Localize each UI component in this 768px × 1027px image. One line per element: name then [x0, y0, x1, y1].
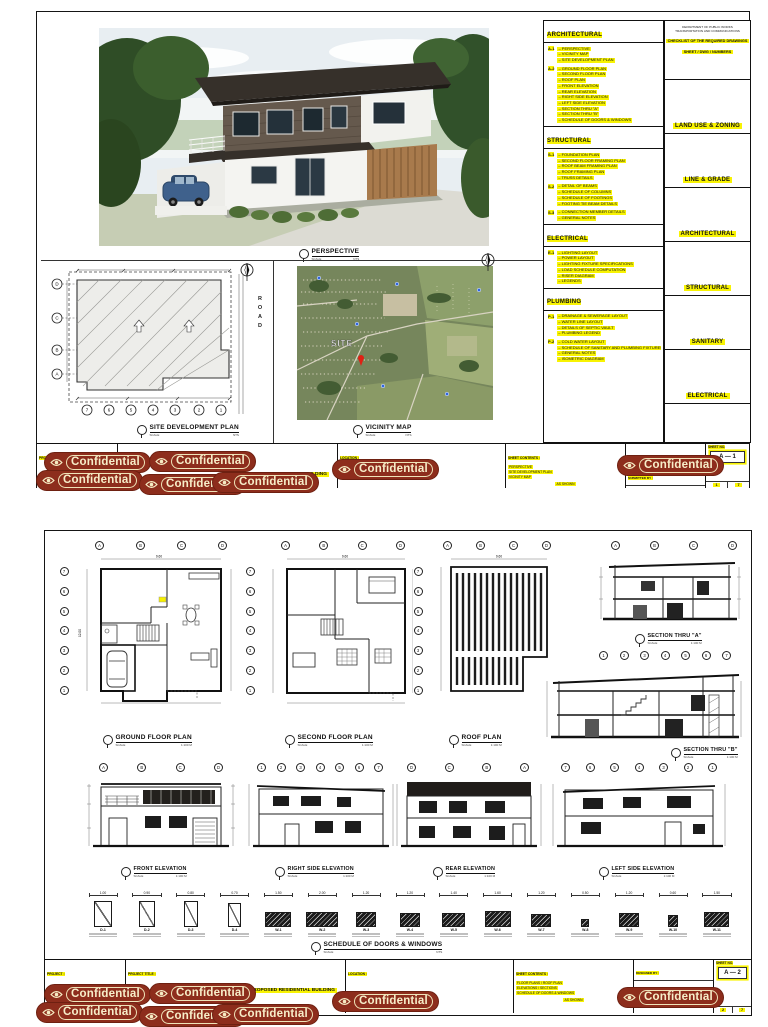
- left-elevation-drawing: [547, 774, 731, 854]
- project-title: PROPOSED RESIDENTIAL BUILDING: [248, 988, 337, 993]
- drawing-title: ROOF PLAN: [462, 734, 502, 743]
- scale-word: SCALE: [366, 433, 376, 437]
- drawing-title: PERSPECTIVE: [312, 248, 360, 257]
- detail-marker-icon: [671, 748, 681, 758]
- scale-note: AS SHOWN: [555, 482, 577, 486]
- grid-bubble: 3: [414, 646, 423, 655]
- schedule-item: 1.50 W-1: [260, 891, 296, 937]
- sheet-code: P-1: [548, 314, 554, 319]
- grid-bubble: 5: [60, 607, 69, 616]
- grid-bubble: 3: [296, 763, 305, 772]
- front-elevation-panel: ABCD FRONT ELEVATION SCALE1:100 M: [85, 763, 237, 881]
- cell-label: PROJECT TITLE :: [128, 972, 156, 976]
- note-item: SCHEDULE OF FOOTINGS: [557, 196, 613, 201]
- grid-bubble: 7: [246, 567, 255, 576]
- notes-structural: STRUCTURAL S-1 FOUNDATION PLANSECOND FLO…: [544, 126, 663, 221]
- checklist-row: LINE & GRADE: [665, 134, 750, 188]
- grid-bubble: 7: [414, 567, 423, 576]
- grid-bubble: A: [95, 541, 104, 550]
- eye-icon: [42, 1008, 55, 1017]
- section-title: ELECTRICAL: [547, 236, 588, 242]
- drawing-title: REAR ELEVATION: [446, 866, 496, 874]
- drawing-title: GROUND FLOOR PLAN: [116, 734, 192, 743]
- confidential-stamp: Confidential: [212, 1004, 319, 1025]
- page-total: 7: [735, 483, 741, 487]
- detail-marker-icon: [433, 867, 443, 877]
- grid-bubble: 1: [708, 763, 717, 772]
- scale-value: 1:100 M: [484, 874, 495, 878]
- detail-marker-icon: [353, 425, 363, 435]
- door-window-symbol: [619, 913, 639, 927]
- sheet-content-line: SITE DEVELOPMENT PLAN: [508, 470, 553, 474]
- grid-bubble: C: [176, 763, 185, 772]
- grid-bubble: 7: [561, 763, 570, 772]
- notes-electrical: ELECTRICAL E-1 LIGHTING LAYOUTPOWER LAYO…: [544, 224, 663, 284]
- dim-text: 12.00: [78, 629, 82, 637]
- grid-bubble: 7: [374, 763, 383, 772]
- section-b-panel: 1234567 SECTION THRU "B" SCALE1:100 M: [543, 651, 747, 761]
- page-number: 1: [713, 483, 719, 487]
- note-item: PLUMBING LEGEND: [557, 331, 601, 336]
- grid-bubble: B: [650, 541, 659, 550]
- cell-label: SHEET CONTENTS :: [508, 456, 540, 460]
- item-caption: [436, 932, 472, 937]
- dim-label: 0.90: [132, 891, 161, 896]
- item-caption: [567, 932, 603, 937]
- schedule-item: 0.60 W-10: [655, 891, 691, 937]
- sheet-1: PERSPECTIVE SCALENTS D C B A 7 6: [36, 11, 750, 488]
- rear-elevation-drawing: [393, 774, 545, 854]
- grid-bubble: A: [520, 763, 529, 772]
- confidential-stamp: Confidential: [36, 1002, 143, 1023]
- detail-marker-icon: [137, 425, 147, 435]
- note-item: LOAD SCHEDULE COMPUTATION: [557, 268, 626, 273]
- checklist-label: LAND USE & ZONING: [673, 123, 742, 129]
- eye-icon: [218, 478, 231, 487]
- site-plan-label: SITE DEVELOPMENT PLAN SCALENTS: [137, 424, 239, 437]
- grid-bubble: 1: [599, 651, 608, 660]
- note-item: FRONT ELEVATION: [557, 84, 599, 89]
- grid-bubble: 6: [414, 587, 423, 596]
- roof-plan-label: ROOF PLAN SCALE1:100 M: [449, 734, 502, 747]
- door-window-symbol: [704, 912, 729, 927]
- dim-label: 2.00: [308, 891, 337, 896]
- grid-bubble: A: [99, 763, 108, 772]
- item-caption: [217, 932, 253, 937]
- sheet-content-line: FLOOR PLANS / ROOF PLAN: [516, 981, 563, 985]
- schedule-item: 1.00 D-1: [85, 891, 121, 937]
- item-caption: [85, 932, 121, 937]
- grid-bubble: 2: [60, 666, 69, 675]
- section-title: PLUMBING: [547, 299, 581, 305]
- sheet-code: S-1: [548, 152, 554, 157]
- grid-bubble: 3: [60, 646, 69, 655]
- grid-bubble: 2: [684, 763, 693, 772]
- grid-bubble: 1: [257, 763, 266, 772]
- scale-word: SCALE: [684, 755, 694, 759]
- dim-label: 0.50: [571, 891, 600, 896]
- scale-value: 1:100 M: [491, 743, 502, 747]
- grid-bubble: B: [319, 541, 328, 550]
- confidential-stamp: Confidential: [149, 983, 256, 1004]
- grid-bubble: C: [177, 541, 186, 550]
- checklist-row: LAND USE & ZONING: [665, 80, 750, 134]
- left-elevation-panel: 7654321 LEFT SIDE ELEVATION SCALE1:100 M: [547, 763, 731, 881]
- item-caption: [348, 932, 384, 937]
- grid-bubble: C: [509, 541, 518, 550]
- checklist-row: ELECTRICAL: [665, 350, 750, 404]
- rear-elevation-panel: DCBA REAR ELEVATION SCALE1:100 M: [393, 763, 543, 881]
- door-window-symbol: [306, 912, 338, 927]
- right-elevation-drawing: [245, 774, 397, 854]
- checklist-header: DEPARTMENT OF PUBLIC WORKSTRANSPORTATION…: [665, 21, 750, 80]
- grid-bubble: A: [55, 372, 58, 377]
- second-floor-plan-drawing: 9.60: [257, 553, 413, 708]
- second-floor-plan-panel: ABCD 7654321 9.60 SECOND FLOOR PLAN SCAL…: [245, 541, 413, 757]
- scale-value: 1:100 M: [343, 874, 354, 878]
- signature-label: DESIGNED BY :: [636, 971, 659, 975]
- scale-word: SCALE: [324, 950, 334, 954]
- grid-bubble: C: [358, 541, 367, 550]
- sheet-code: A-1: [548, 46, 554, 51]
- grid-bubble: A: [281, 541, 290, 550]
- grid-bubble: C: [445, 763, 454, 772]
- section-b-label: SECTION THRU "B" SCALE1:100 M: [671, 747, 738, 759]
- door-window-symbol: [228, 903, 241, 927]
- detail-marker-icon: [121, 867, 131, 877]
- confidential-stamp: Confidential: [212, 472, 319, 493]
- ground-floor-plan-panel: ABCD 7654321 9.60 12.00: [59, 541, 241, 757]
- dim-label: 1.20: [352, 891, 381, 896]
- detail-marker-icon: [103, 735, 113, 745]
- notes-architectural: ARCHITECTURAL A-1 PERSPECTIVEVICINITY MA…: [544, 21, 663, 123]
- roof-plan-panel: ABCD 7654321 9.60 ROOF PLAN SCALE1:100 M: [413, 541, 557, 757]
- grid-bubble: 5: [335, 763, 344, 772]
- vicinity-map-label: VICINITY MAP SCALENTS: [353, 424, 411, 437]
- grid-bubble: D: [396, 541, 405, 550]
- note-item: ISOMETRIC DIAGRAM: [557, 357, 604, 362]
- sheet-content-line: ELEVATIONS / SECTIONS: [516, 986, 558, 990]
- scale-note: AS SHOWN: [563, 998, 585, 1002]
- sheet-code: E-1: [548, 250, 554, 255]
- note-item: COLD WATER LAYOUT: [557, 340, 605, 345]
- detail-marker-icon: [275, 867, 285, 877]
- item-caption: [173, 932, 209, 937]
- drawing-title: VICINITY MAP: [366, 424, 412, 433]
- dim-text: 9.60: [496, 555, 502, 559]
- eye-icon: [145, 1012, 158, 1021]
- grid-bubble: 4: [414, 626, 423, 635]
- schedule-item: 2.00 W-2: [304, 891, 340, 937]
- confidential-stamp: Confidential: [332, 991, 439, 1012]
- note-item: SCHEDULE OF DOORS & WINDOWS: [557, 118, 632, 123]
- section-a-panel: ABCD SECTION THRU "A" SCALE1:100 M: [597, 541, 747, 649]
- dim-text: 9.60: [342, 555, 348, 559]
- drawing-title: SCHEDULE OF DOORS & WINDOWS: [324, 941, 443, 950]
- door-window-symbol: [668, 915, 678, 927]
- scale-value: 1:100 M: [362, 743, 373, 747]
- detail-marker-icon: [311, 942, 321, 952]
- schedule-item: 1.20 W-7: [523, 891, 559, 937]
- scale-word: SCALE: [150, 433, 160, 437]
- site-development-plan-drawing: D C B A 7 6 5 4 3 2 1: [43, 264, 255, 420]
- grid-bubble: 5: [610, 763, 619, 772]
- sheet-content-line: VICINITY MAP: [508, 475, 532, 479]
- note-item: WATER LINE LAYOUT: [557, 320, 603, 325]
- second-floor-plan-label: SECOND FLOOR PLAN SCALE1:100 M: [285, 734, 373, 747]
- door-window-symbol: [400, 913, 420, 927]
- site-label: SITE: [331, 339, 353, 348]
- scale-word: SCALE: [612, 874, 622, 878]
- schedule-item: 0.70 D-4: [217, 891, 253, 937]
- grid-bubble: B: [137, 763, 146, 772]
- grid-bubble: 1: [414, 686, 423, 695]
- dim-text: 9.60: [156, 555, 162, 559]
- right-elevation-panel: 1234567 RIGHT SIDE ELEVATION SCALE1:100 …: [245, 763, 395, 881]
- eye-icon: [42, 476, 55, 485]
- cell-label: SHEET CONTENTS :: [516, 972, 548, 976]
- schedule-item: 0.50 W-8: [567, 891, 603, 937]
- checklist-label: ELECTRICAL: [686, 393, 730, 399]
- scale-word: SCALE: [446, 874, 456, 878]
- grid-bubble: 4: [635, 763, 644, 772]
- grid-bubble: 1: [60, 686, 69, 695]
- grid-bubble: D: [542, 541, 551, 550]
- item-caption: [480, 932, 516, 937]
- schedule-item: 1.40 W-5: [436, 891, 472, 937]
- grid-bubble: 2: [277, 763, 286, 772]
- sheetno-label: SHEET NO.: [716, 961, 733, 965]
- grid-bubble: 5: [681, 651, 690, 660]
- divider: [41, 260, 543, 261]
- grid-bubble: D: [218, 541, 227, 550]
- grid-bubble: B: [55, 348, 58, 353]
- grid-bubble: 5: [246, 607, 255, 616]
- grid-bubble: 6: [60, 587, 69, 596]
- schedule-item: 1.50 W-11: [699, 891, 735, 937]
- item-caption: [523, 932, 559, 937]
- dim-label: 1.50: [264, 891, 293, 896]
- road-label: ROAD: [257, 296, 263, 332]
- item-caption: [260, 932, 296, 937]
- drawing-title: SITE DEVELOPMENT PLAN: [150, 424, 239, 433]
- door-window-symbol: [581, 919, 589, 927]
- scale-value: 1:100 M: [181, 743, 192, 747]
- note-item: GENERAL NOTES: [557, 216, 596, 221]
- grid-bubble: B: [136, 541, 145, 550]
- grid-bubble: C: [689, 541, 698, 550]
- eye-icon: [155, 989, 168, 998]
- scale-word: SCALE: [134, 874, 144, 878]
- eye-icon: [338, 997, 351, 1006]
- vicinity-map: SITE: [297, 266, 493, 420]
- titleblock-cell-contents: SHEET CONTENTS : PERSPECTIVESITE DEVELOP…: [505, 444, 625, 488]
- schedule-item: 1.20 W-9: [611, 891, 647, 937]
- grid-bubble: D: [728, 541, 737, 550]
- roof-plan-drawing: 9.60: [425, 553, 557, 708]
- dim-label: 0.70: [220, 891, 249, 896]
- drawing-title: SECTION THRU "B": [684, 747, 738, 755]
- note-item: FOUNDATION PLAN: [557, 153, 600, 158]
- note-item: FOOTING TIE BEAM DETAILS: [557, 202, 618, 207]
- front-elevation-label: FRONT ELEVATION SCALE1:100 M: [121, 866, 187, 878]
- door-window-schedule: 1.00 D-1 0.90 D-2 0.80 D-3 0.70: [85, 887, 735, 937]
- eye-icon: [50, 458, 63, 467]
- scale-word: SCALE: [116, 743, 126, 747]
- grid-bubble: B: [482, 763, 491, 772]
- note-item: LEGENDS: [557, 279, 581, 284]
- grid-bubble: A: [611, 541, 620, 550]
- note-item: ROOF FRAMING PLAN: [557, 170, 605, 175]
- grid-bubble: B: [476, 541, 485, 550]
- grid-bubble: 2: [414, 666, 423, 675]
- page-number: 2: [720, 1008, 726, 1012]
- detail-marker-icon: [449, 735, 459, 745]
- eye-icon: [338, 465, 351, 474]
- sheetno-label: SHEET NO.: [708, 445, 725, 449]
- section-title: ARCHITECTURAL: [547, 32, 602, 38]
- front-elevation-drawing: [85, 774, 237, 854]
- grid-bubble: 6: [246, 587, 255, 596]
- cell-label: PROJECT :: [47, 972, 65, 976]
- checklist-label: LINE & GRADE: [683, 177, 732, 183]
- schedule-item: 1.60 W-6: [480, 891, 516, 937]
- drawing-title: SECOND FLOOR PLAN: [298, 734, 373, 743]
- confidential-stamp: Confidential: [617, 987, 724, 1008]
- grid-bubble: 6: [355, 763, 364, 772]
- checklist-label: SANITARY: [690, 339, 726, 345]
- grid-bubble: 7: [60, 567, 69, 576]
- item-caption: [304, 932, 340, 937]
- sheet-2: ABCD 7654321 9.60 12.00: [44, 530, 752, 1016]
- sheet-code: S-3: [548, 210, 554, 215]
- door-window-symbol: [265, 912, 291, 927]
- schedule-item: 1.20 W-3: [348, 891, 384, 937]
- checklist-row: SANITARY: [665, 296, 750, 350]
- grid-bubble: 4: [60, 626, 69, 635]
- grid-bubble: 2: [620, 651, 629, 660]
- sheet-content-line: SCHEDULE OF DOORS & WINDOWS: [516, 991, 575, 995]
- scale-word: SCALE: [288, 874, 298, 878]
- confidential-stamp: Confidential: [617, 455, 724, 476]
- drawing-title: FRONT ELEVATION: [134, 866, 187, 874]
- grid-bubble: 6: [702, 651, 711, 660]
- checklist-column: DEPARTMENT OF PUBLIC WORKSTRANSPORTATION…: [664, 20, 751, 443]
- left-elevation-label: LEFT SIDE ELEVATION SCALE1:100 M: [599, 866, 674, 878]
- note-item: SITE DEVELOPMENT PLAN: [557, 58, 614, 63]
- dim-label: 0.80: [176, 891, 205, 896]
- divider: [273, 260, 274, 443]
- grid-bubble: 2: [246, 666, 255, 675]
- ground-floor-plan-label: GROUND FLOOR PLAN SCALE1:100 M: [103, 734, 192, 747]
- drawing-index-notes: ARCHITECTURAL A-1 PERSPECTIVEVICINITY MA…: [543, 20, 664, 443]
- dim-label: 1.50: [702, 891, 731, 896]
- page-total: 7: [739, 1008, 745, 1012]
- schedule-item: 0.80 D-3: [173, 891, 209, 937]
- detail-marker-icon: [635, 634, 645, 644]
- door-window-symbol: [139, 901, 155, 927]
- scale-value: 1:100 M: [727, 755, 738, 759]
- door-window-symbol: [94, 901, 112, 927]
- perspective-rendering: [99, 28, 489, 246]
- drawing-title: LEFT SIDE ELEVATION: [612, 866, 675, 874]
- grid-bubble: 7: [722, 651, 731, 660]
- scale-value: 1:100 M: [691, 641, 702, 645]
- item-caption: [655, 932, 691, 937]
- scale-word: SCALE: [462, 743, 472, 747]
- grid-bubble: A: [443, 541, 452, 550]
- scale-value: NTS: [405, 433, 411, 437]
- item-caption: [611, 932, 647, 937]
- dim-label: 1.20: [527, 891, 556, 896]
- house-3d-render: [99, 28, 489, 246]
- sheet-code: A-2: [548, 66, 554, 71]
- note-item: TRUSS DETAILS: [557, 176, 593, 181]
- schedule-item: 0.90 D-2: [129, 891, 165, 937]
- sheet-content-line: PERSPECTIVE: [508, 465, 533, 469]
- eye-icon: [50, 990, 63, 999]
- north-arrow-icon: [481, 252, 495, 272]
- dim-label: 1.00: [89, 891, 118, 896]
- door-window-symbol: [531, 914, 551, 927]
- checklist-row: ARCHITECTURAL: [665, 188, 750, 242]
- door-window-symbol: [442, 913, 465, 927]
- department-line: TRANSPORTATION AND COMMUNICATIONS: [675, 29, 740, 33]
- checklist-label: ARCHITECTURAL: [679, 231, 737, 237]
- grid-bubble: 3: [246, 646, 255, 655]
- dim-label: 1.20: [615, 891, 644, 896]
- section-b-drawing: [543, 663, 745, 743]
- checklist-title: CHECKLIST OF THE REQUIRED DRAWINGS: [666, 39, 750, 43]
- scale-value: NTS: [233, 433, 239, 437]
- confidential-stamp: Confidential: [36, 470, 143, 491]
- dim-label: 1.40: [439, 891, 468, 896]
- scale-value: 1:100 M: [664, 874, 675, 878]
- door-window-symbol: [485, 911, 511, 927]
- sheet-code: P-2: [548, 339, 554, 344]
- eye-icon: [623, 993, 636, 1002]
- titleblock-cell-contents: SHEET CONTENTS : FLOOR PLANS / ROOF PLAN…: [513, 960, 633, 1013]
- dim-label: 1.60: [483, 891, 512, 896]
- item-caption: [392, 932, 428, 937]
- signature-row: DESIGNED BY :: [634, 960, 713, 981]
- signature-row: RECOMMENDED BY :: [626, 486, 705, 488]
- dim-label: 0.60: [659, 891, 688, 896]
- section-title: STRUCTURAL: [547, 138, 591, 144]
- detail-marker-icon: [299, 249, 309, 259]
- grid-bubble: 3: [640, 651, 649, 660]
- right-elevation-label: RIGHT SIDE ELEVATION SCALE1:100 M: [275, 866, 354, 878]
- checklist-label: STRUCTURAL: [684, 285, 731, 291]
- scale-value: NTS: [436, 950, 442, 954]
- confidential-stamp: Confidential: [149, 451, 256, 472]
- drawing-title: SECTION THRU "A": [648, 633, 702, 641]
- grid-bubble: 6: [586, 763, 595, 772]
- notes-plumbing: PLUMBING P-1 DRAINAGE & SEWERAGE LAYOUTW…: [544, 288, 663, 363]
- grid-bubble: D: [407, 763, 416, 772]
- sheet-code: S-2: [548, 184, 554, 189]
- grid-bubble: 5: [414, 607, 423, 616]
- item-caption: [129, 932, 165, 937]
- rear-elevation-label: REAR ELEVATION SCALE1:100 M: [433, 866, 495, 878]
- door-window-symbol: [356, 912, 376, 927]
- item-caption: [699, 932, 735, 937]
- grid-bubble: 4: [316, 763, 325, 772]
- scale-word: SCALE: [298, 743, 308, 747]
- detail-marker-icon: [285, 735, 295, 745]
- drawing-title: RIGHT SIDE ELEVATION: [288, 866, 354, 874]
- cell-label: LOCATION :: [348, 972, 367, 976]
